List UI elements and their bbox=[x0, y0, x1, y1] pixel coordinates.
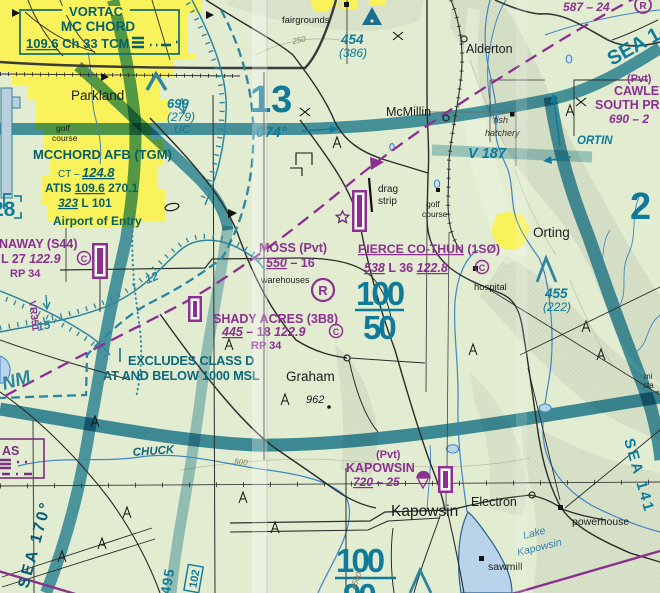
svg-text:powerhouse: powerhouse bbox=[572, 516, 629, 528]
svg-text:VORTAC: VORTAC bbox=[69, 4, 124, 19]
svg-text:hatchery: hatchery bbox=[485, 128, 520, 138]
svg-text:(386): (386) bbox=[339, 46, 367, 60]
svg-text:golf: golf bbox=[426, 199, 440, 209]
svg-text:L 27 122.9: L 27 122.9 bbox=[1, 252, 61, 266]
svg-text:ORTIN: ORTIN bbox=[577, 135, 613, 147]
svg-text:28: 28 bbox=[0, 198, 16, 221]
svg-text:KAPOWSIN: KAPOWSIN bbox=[346, 461, 415, 475]
svg-text:PIERCE CO-THUN (1SØ): PIERCE CO-THUN (1SØ) bbox=[358, 242, 500, 256]
svg-text:R: R bbox=[639, 1, 647, 12]
svg-text:699: 699 bbox=[167, 96, 189, 111]
svg-text:drag: drag bbox=[378, 184, 398, 195]
svg-text:warehouses: warehouses bbox=[260, 275, 310, 285]
svg-text:500: 500 bbox=[234, 457, 249, 467]
svg-text:538 L 36 122.8: 538 L 36 122.8 bbox=[364, 261, 448, 275]
svg-text:124.8: 124.8 bbox=[82, 165, 115, 180]
svg-text:109.6 Ch 33 TCM: 109.6 Ch 33 TCM bbox=[26, 36, 129, 51]
svg-text:V 187: V 187 bbox=[468, 146, 507, 162]
svg-text:fish: fish bbox=[494, 115, 508, 125]
svg-text:Electron: Electron bbox=[471, 495, 517, 509]
svg-text:323 L 101: 323 L 101 bbox=[58, 196, 112, 210]
svg-text:course: course bbox=[422, 209, 448, 219]
svg-text:mi: mi bbox=[644, 372, 653, 381]
svg-text:EXCLUDES CLASS D: EXCLUDES CLASS D bbox=[128, 353, 254, 368]
svg-text:course: course bbox=[52, 133, 78, 143]
svg-text:Kapowsin: Kapowsin bbox=[391, 503, 458, 520]
svg-text:Parkland: Parkland bbox=[71, 88, 124, 103]
svg-text:Orting: Orting bbox=[533, 225, 570, 240]
svg-text:690 – 2: 690 – 2 bbox=[609, 112, 649, 126]
svg-text:RP 34: RP 34 bbox=[10, 268, 41, 280]
svg-text:587 – 24: 587 – 24 bbox=[563, 0, 610, 14]
svg-text:C: C bbox=[333, 327, 340, 337]
svg-text:AT AND BELOW 1000 MSL: AT AND BELOW 1000 MSL bbox=[103, 368, 260, 383]
svg-text:454: 454 bbox=[340, 32, 364, 47]
svg-text:2: 2 bbox=[630, 186, 651, 228]
svg-text:NAWAY (S44): NAWAY (S44) bbox=[0, 237, 78, 251]
svg-text:Airport of Entry: Airport of Entry bbox=[53, 214, 142, 228]
svg-text:strip: strip bbox=[378, 196, 397, 207]
svg-text:550 – 16: 550 – 16 bbox=[266, 256, 315, 270]
svg-text:MOSS (Pvt): MOSS (Pvt) bbox=[259, 241, 327, 255]
svg-text:MC CHORD: MC CHORD bbox=[61, 19, 135, 34]
svg-text:50: 50 bbox=[363, 309, 395, 346]
svg-text:SOUTH PRA: SOUTH PRA bbox=[595, 98, 660, 112]
svg-text:CAWLEY: CAWLEY bbox=[614, 84, 660, 98]
svg-text:(Pvt): (Pvt) bbox=[376, 449, 401, 461]
svg-text:UC: UC bbox=[174, 124, 190, 136]
svg-text:962: 962 bbox=[306, 394, 324, 406]
svg-text:McMillin: McMillin bbox=[386, 105, 431, 119]
svg-text:(279): (279) bbox=[167, 110, 195, 124]
svg-text:(222): (222) bbox=[543, 300, 571, 314]
svg-text:CT –: CT – bbox=[58, 169, 80, 180]
svg-text:fairgrounds: fairgrounds bbox=[282, 15, 330, 26]
svg-text:100: 100 bbox=[356, 275, 404, 312]
svg-text:R: R bbox=[318, 283, 328, 298]
svg-text:455: 455 bbox=[544, 286, 568, 301]
svg-text:MCCHORD AFB (TGM): MCCHORD AFB (TGM) bbox=[33, 147, 172, 162]
svg-text:ATIS 109.6 270.1: ATIS 109.6 270.1 bbox=[45, 181, 139, 195]
svg-text:C: C bbox=[81, 254, 88, 264]
svg-text:AS: AS bbox=[2, 444, 19, 458]
svg-text:sta: sta bbox=[643, 381, 654, 390]
svg-text:720 – 25: 720 – 25 bbox=[353, 475, 400, 489]
svg-text:C: C bbox=[479, 263, 486, 273]
svg-text:golf: golf bbox=[56, 123, 70, 133]
svg-text:hospital: hospital bbox=[474, 282, 507, 293]
svg-text:SHADY ACRES (3B8): SHADY ACRES (3B8) bbox=[213, 312, 338, 326]
svg-text:Graham: Graham bbox=[286, 369, 335, 384]
svg-text:Alderton: Alderton bbox=[466, 42, 513, 56]
